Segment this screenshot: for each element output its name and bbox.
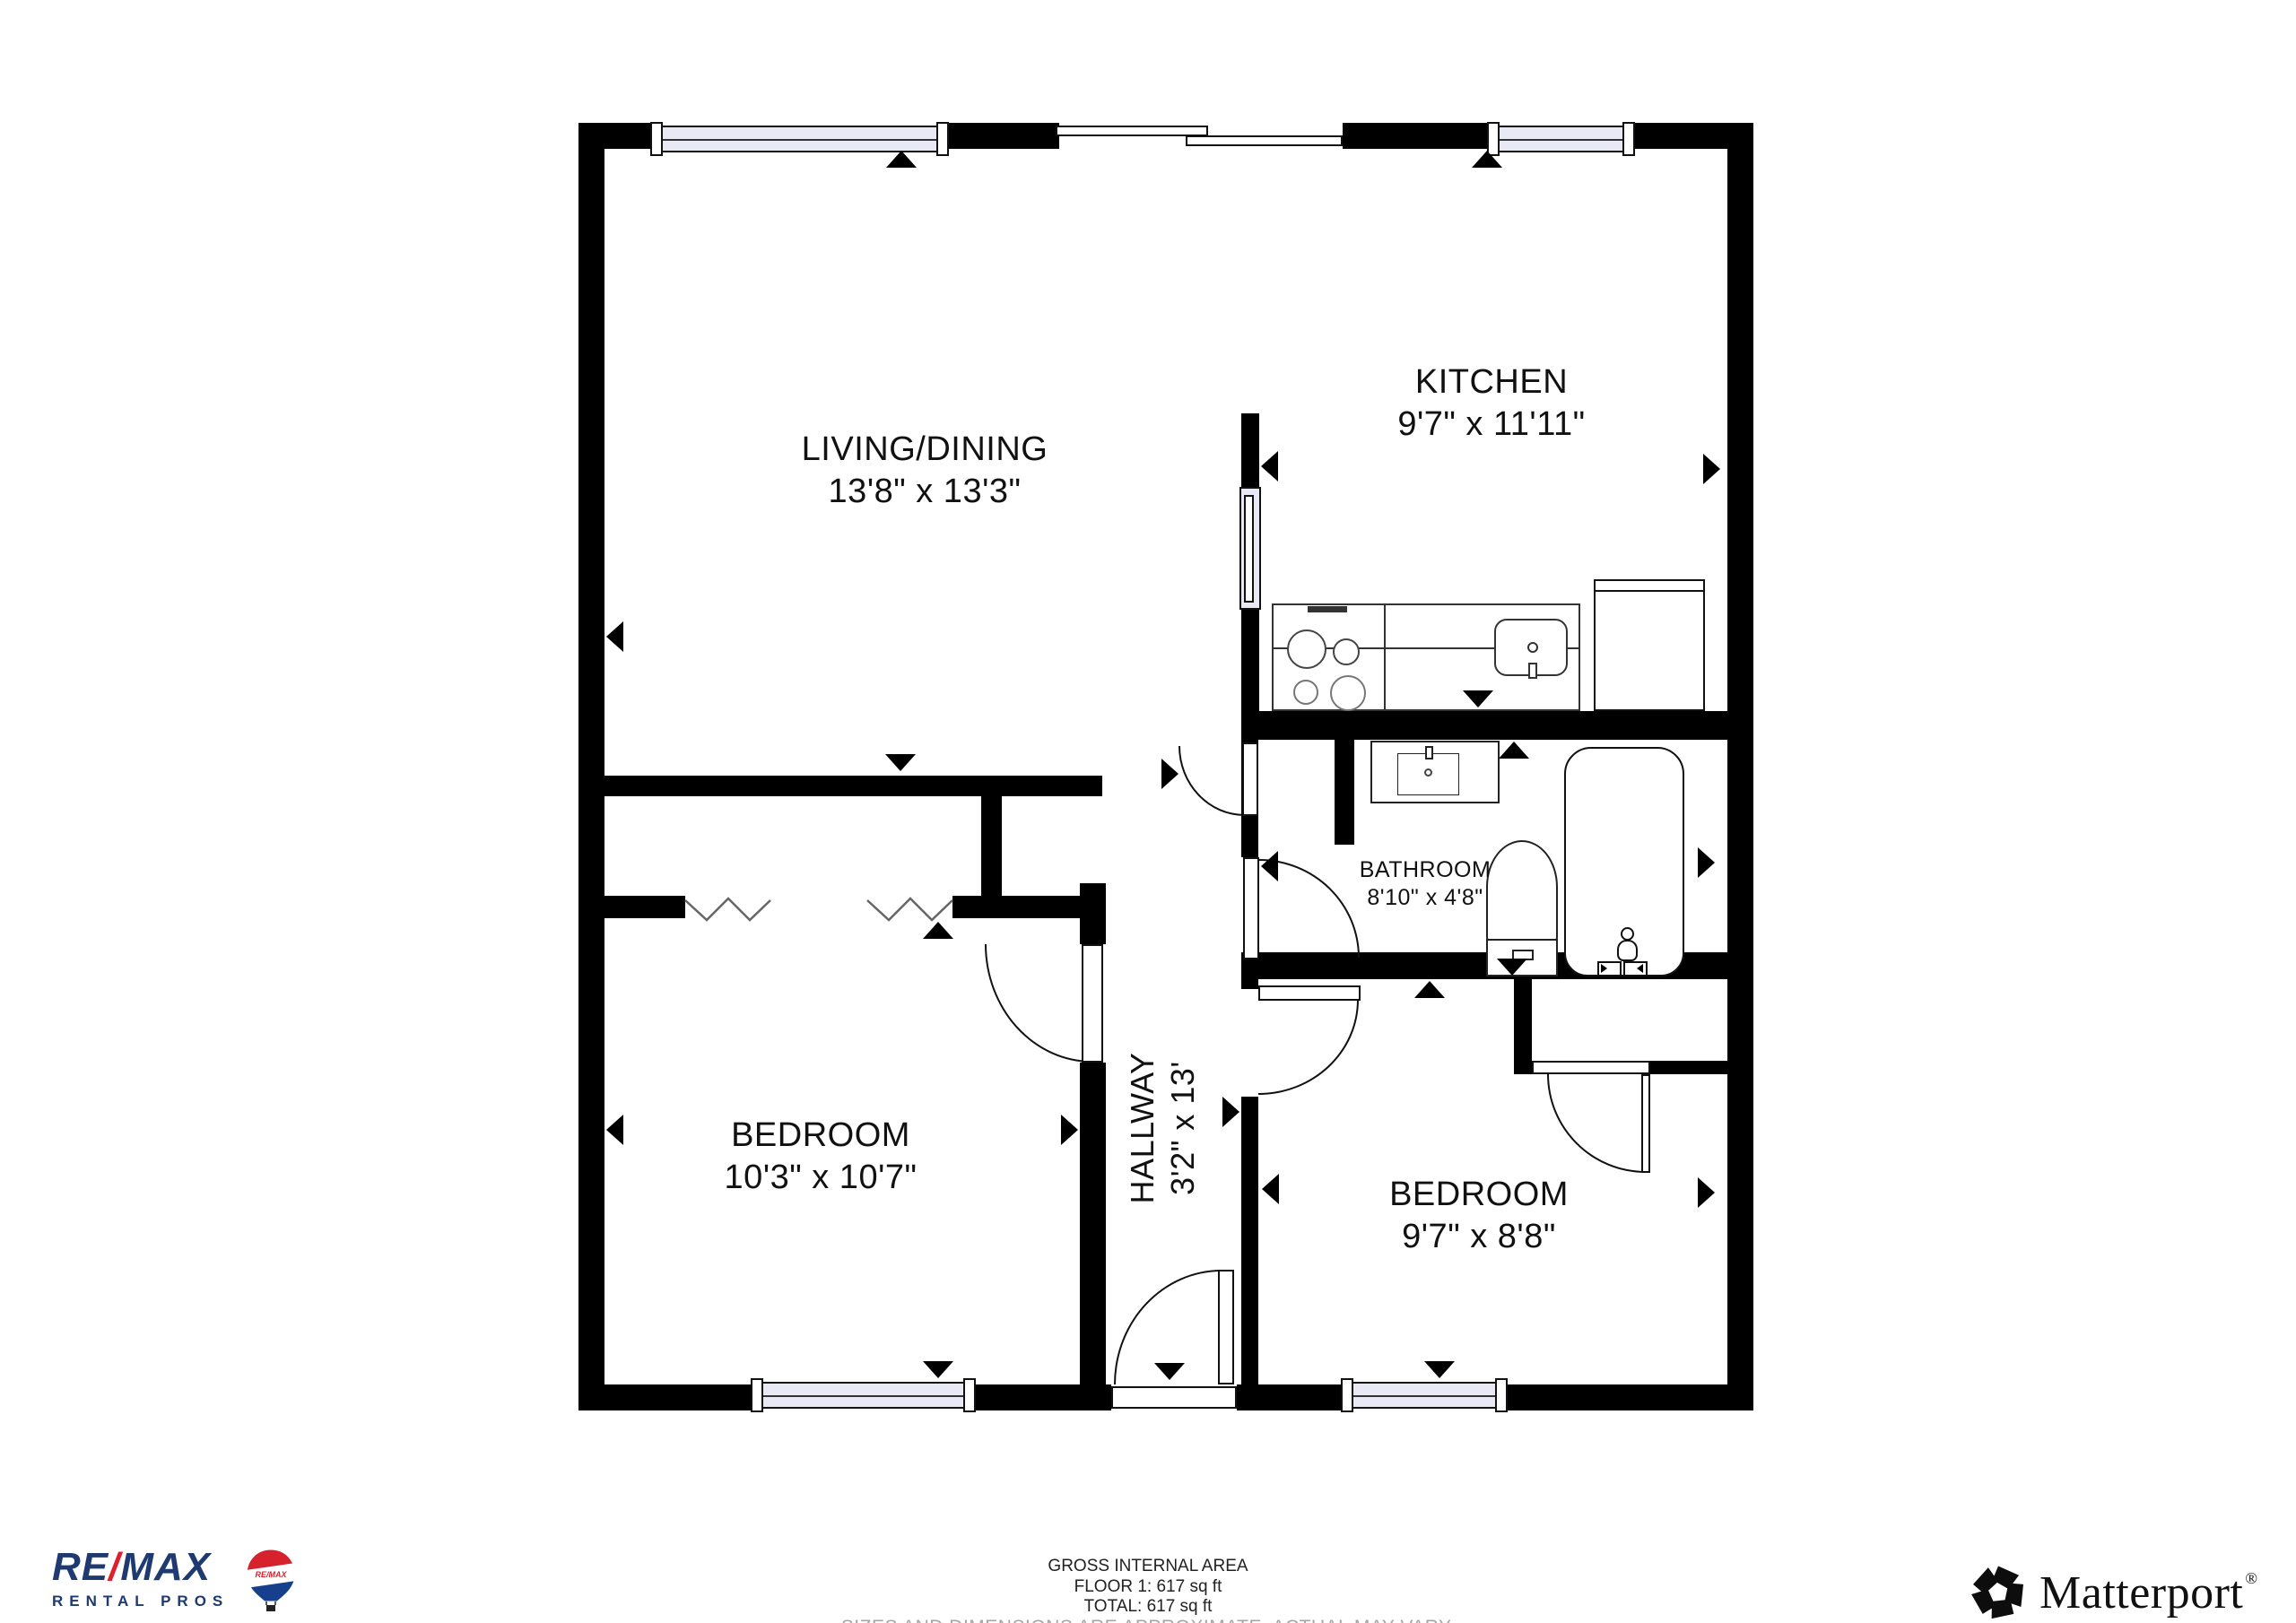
remax-logo: RE/MAX RENTAL PROS RE/MAX (52, 1549, 299, 1618)
bathroom-vanity-faucet (1425, 746, 1433, 759)
stove-burner-3 (1293, 680, 1318, 705)
bathtub-valve-right (1623, 961, 1648, 976)
door-arc-bedroom-left (985, 944, 1092, 1063)
matterport-pinwheel-icon (1970, 1564, 2027, 1621)
window-bedroom-right-cap-l (1341, 1378, 1353, 1412)
measure-arrow-hallway-bottom-icon (1154, 1363, 1185, 1380)
closet-right-opening (1532, 1061, 1650, 1074)
measure-arrow-living-left-icon (606, 621, 623, 652)
wall-bathroom-short (1335, 740, 1354, 845)
remax-max: MAX (120, 1545, 211, 1589)
stove-divider (1384, 603, 1386, 711)
window-kitchen (1491, 126, 1633, 152)
window-living (654, 126, 949, 152)
stove-backsplash (1308, 606, 1347, 612)
label-bedroom-left-dims: 10'3" x 10'7" (596, 1157, 1045, 1199)
wall-closet-right-left (1514, 979, 1532, 1074)
wall-kitchen-divider-lower (1241, 610, 1259, 711)
window-living-cap-r (936, 122, 949, 156)
label-bedroom-left: BEDROOM 10'3" x 10'7" (596, 1115, 1045, 1199)
wall-hallway-right-2 (1241, 959, 1258, 989)
door-leaf-bedroom-left (1082, 944, 1103, 1063)
bathtub-valve-arrow-right-icon (1637, 964, 1643, 973)
remax-slash: / (109, 1545, 120, 1589)
measure-arrow-bathroom-bottom-icon (1497, 959, 1527, 976)
footer-floor: FLOOR 1: 617 sq ft (0, 1577, 2296, 1598)
label-bathroom: BATHROOM 8'10" x 4'8" (1246, 856, 1605, 912)
wall-hallway-left-lower (1080, 1063, 1106, 1384)
door-arc-closet-right (1547, 1074, 1646, 1173)
label-hallway: HALLWAY 3'2" x 13' (1122, 940, 1206, 1316)
remax-tagline: RENTAL PROS (52, 1593, 229, 1610)
label-bedroom-right: BEDROOM 9'7" x 8'8" (1255, 1174, 1703, 1258)
wall-kitchen-divider-upper (1241, 413, 1259, 487)
matterport-logo: Matterport ® (1970, 1564, 2256, 1621)
remax-brand-text: RE/MAX (52, 1549, 229, 1585)
label-bathroom-dims: 8'10" x 4'8" (1246, 884, 1605, 912)
window-bedroom-left (754, 1382, 976, 1409)
bathroom-vanity-drain (1424, 768, 1432, 777)
door-leaf-closet-right (1641, 1074, 1650, 1173)
label-bedroom-right-dims: 9'7" x 8'8" (1255, 1216, 1703, 1258)
svg-text:RE/MAX: RE/MAX (256, 1570, 288, 1579)
wall-bottom-4 (1506, 1384, 1727, 1410)
measure-arrow-kitchen-top-icon (1472, 151, 1502, 168)
door-arc-bedroom-right (1258, 1000, 1359, 1095)
measure-arrow-kitchen-right-icon (1703, 454, 1720, 484)
wall-closet-right-bottom (1650, 1061, 1727, 1074)
wall-closet-stub-left (604, 896, 685, 918)
window-living-cap-l (650, 122, 663, 156)
wall-bottom-1 (578, 1384, 756, 1410)
label-kitchen-name: KITCHEN (1267, 361, 1716, 404)
measure-arrow-hallway-top-icon (1161, 759, 1178, 789)
measure-arrow-hallway-mid-icon (1222, 1097, 1239, 1127)
label-bedroom-left-name: BEDROOM (596, 1115, 1045, 1157)
stove-burner-2 (1333, 638, 1360, 665)
matterport-reg: ® (2245, 1569, 2257, 1588)
measure-arrow-bedroomright-top-icon (1414, 981, 1445, 998)
measure-arrow-bathroom-top-icon (1499, 742, 1529, 759)
measure-arrow-bedroomleft-bottom-icon (923, 1361, 953, 1378)
interior-window-kitchen-slot (1244, 495, 1254, 603)
measure-arrow-bedroomright-bottom-icon (1424, 1361, 1455, 1378)
label-living-dims: 13'8" x 13'3" (700, 471, 1149, 513)
label-bathroom-name: BATHROOM (1246, 856, 1605, 884)
wall-bathroom-top (1241, 711, 1727, 740)
window-bedroom-left-cap-l (751, 1378, 763, 1412)
wall-bottom-2 (974, 1384, 1111, 1410)
measure-arrow-kitchen-bottom-icon (1463, 690, 1493, 707)
wall-top-3 (1343, 123, 1492, 149)
kitchen-sink-handle (1528, 663, 1537, 679)
door-leaf-hallway-top (1242, 742, 1258, 816)
label-hallway-dims: 3'2" x 13' (1162, 940, 1203, 1316)
remax-wordmark: RE/MAX RENTAL PROS (52, 1549, 229, 1610)
footer-area-summary: GROSS INTERNAL AREA FLOOR 1: 617 sq ft T… (0, 1557, 2296, 1623)
window-kitchen-cap-r (1622, 122, 1635, 156)
label-living-name: LIVING/DINING (700, 429, 1149, 471)
door-leaf-bedroom-right (1258, 985, 1361, 1001)
bathtub-valve-arrow-left-icon (1601, 964, 1607, 973)
wall-hallway-left-upper (1080, 883, 1106, 944)
remax-balloon-icon: RE/MAX (243, 1548, 299, 1616)
remax-re: RE (52, 1545, 109, 1589)
footer-gross: GROSS INTERNAL AREA (0, 1557, 2296, 1577)
window-bedroom-right-cap-r (1495, 1378, 1508, 1412)
door-leaf-entry (1218, 1270, 1234, 1384)
window-bedroom-right (1344, 1382, 1508, 1409)
door-arc-hallway-top (1178, 746, 1245, 816)
measure-arrow-bathroom-right-icon (1698, 847, 1715, 878)
measure-arrow-kitchen-left-icon (1261, 451, 1278, 482)
wall-top-2 (947, 123, 1059, 149)
measure-arrow-bedroomleft-top-icon (923, 922, 953, 939)
footer-disclaimer: SIZES AND DIMENSIONS ARE APPROXIMATE, AC… (0, 1618, 2296, 1623)
fridge (1594, 579, 1705, 711)
wall-bottom-3 (1237, 1384, 1346, 1410)
footer-total: TOTAL: 617 sq ft (0, 1597, 2296, 1618)
bathtub-faucet (1617, 940, 1638, 961)
kitchen-sink-faucet (1527, 642, 1538, 653)
closet-zigzag-rods (682, 892, 978, 924)
thin-wall-segment-2 (1186, 135, 1343, 146)
matterport-name: Matterport (2039, 1567, 2243, 1619)
window-bedroom-left-cap-r (963, 1378, 976, 1412)
label-kitchen-dims: 9'7" x 11'11" (1267, 404, 1716, 446)
wall-closet-vertical-stub (981, 796, 1002, 897)
wall-left (578, 123, 604, 1410)
label-living: LIVING/DINING 13'8" x 13'3" (700, 429, 1149, 513)
label-kitchen: KITCHEN 9'7" x 11'11" (1267, 361, 1716, 446)
floorplan-page: LIVING/DINING 13'8" x 13'3" KITCHEN 9'7"… (0, 0, 2296, 1623)
wall-living-bedroom (604, 776, 1102, 796)
bathtub-drain (1621, 927, 1634, 941)
measure-arrow-living-top-icon (886, 151, 917, 168)
stove-burner-1 (1287, 629, 1326, 669)
wall-right (1727, 123, 1753, 1410)
fridge-top-line (1594, 590, 1705, 592)
entry-door-threshold (1111, 1386, 1237, 1409)
label-bedroom-right-name: BEDROOM (1255, 1174, 1703, 1216)
stove-burner-4 (1330, 675, 1366, 711)
label-hallway-name: HALLWAY (1122, 940, 1162, 1316)
measure-arrow-living-bottom-icon (885, 754, 916, 771)
measure-arrow-bedroomleft-right-icon (1061, 1115, 1078, 1145)
